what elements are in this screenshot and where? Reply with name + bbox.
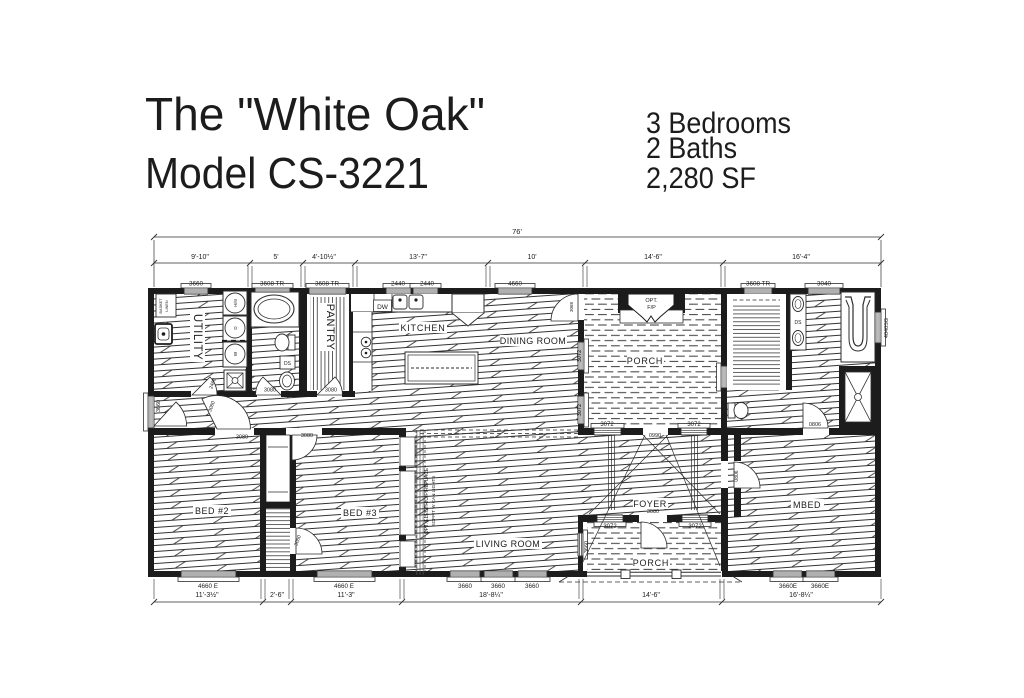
svg-text:3072: 3072 — [688, 524, 702, 530]
svg-text:3660: 3660 — [525, 583, 540, 590]
svg-text:5': 5' — [273, 254, 278, 261]
svg-text:3660: 3660 — [584, 541, 590, 553]
svg-text:2440: 2440 — [391, 281, 406, 288]
svg-text:3608 TR: 3608 TR — [746, 281, 770, 288]
svg-text:3660: 3660 — [156, 400, 162, 412]
svg-text:3660: 3660 — [189, 281, 204, 288]
svg-text:2 Baths: 2 Baths — [646, 132, 737, 165]
svg-text:3068: 3068 — [569, 301, 574, 312]
svg-text:4660 E: 4660 E — [198, 583, 218, 590]
svg-text:KITCHEN: KITCHEN — [400, 323, 445, 333]
svg-text:LINEN: LINEN — [165, 300, 169, 311]
svg-text:16'-4": 16'-4" — [792, 254, 810, 261]
svg-text:BASKET: BASKET — [159, 298, 163, 314]
svg-text:4040SG: 4040SG — [884, 318, 890, 338]
svg-text:13'-7": 13'-7" — [409, 254, 427, 261]
svg-text:3660: 3660 — [458, 583, 473, 590]
svg-text:18'-8¼": 18'-8¼" — [479, 592, 503, 599]
svg-text:DS: DS — [795, 320, 803, 326]
svg-text:3072: 3072 — [577, 404, 583, 416]
svg-text:16'-8¼": 16'-8¼" — [789, 592, 813, 599]
svg-text:3080: 3080 — [236, 435, 248, 441]
svg-text:3660E: 3660E — [779, 583, 797, 590]
svg-text:4'-10½": 4'-10½" — [312, 253, 336, 261]
svg-text:UTILITY: UTILITY — [191, 314, 203, 360]
svg-text:3660: 3660 — [491, 583, 506, 590]
svg-text:4660: 4660 — [508, 281, 523, 288]
svg-text:DS: DS — [284, 361, 292, 367]
svg-text:14'-6": 14'-6" — [644, 254, 662, 261]
svg-text:4660 E: 4660 E — [334, 583, 354, 590]
svg-text:3080: 3080 — [647, 509, 659, 515]
svg-text:The "White Oak": The "White Oak" — [145, 88, 485, 140]
svg-text:3072: 3072 — [687, 422, 701, 428]
svg-text:OPT.: OPT. — [645, 298, 658, 304]
svg-text:FOYER: FOYER — [633, 499, 667, 509]
svg-text:3080: 3080 — [264, 388, 276, 394]
svg-text:2,280 SF: 2,280 SF — [646, 162, 756, 195]
svg-text:BED #3: BED #3 — [343, 508, 377, 518]
svg-text:OPT. ELECTRIC FIREPLACE: OPT. ELECTRIC FIREPLACE — [424, 467, 430, 534]
svg-text:LIVING ROOM: LIVING ROOM — [476, 539, 540, 549]
svg-text:76': 76' — [512, 227, 522, 236]
svg-text:3072: 3072 — [600, 422, 614, 428]
svg-text:H/M: H/M — [233, 299, 238, 307]
svg-text:3072: 3072 — [603, 524, 617, 530]
svg-text:MBED: MBED — [793, 500, 821, 510]
svg-text:3080: 3080 — [301, 433, 313, 439]
svg-text:SOFFIT W CAN LIGHTS: SOFFIT W CAN LIGHTS — [431, 476, 436, 527]
svg-text:3660E: 3660E — [811, 583, 829, 590]
svg-text:DW: DW — [377, 304, 389, 311]
svg-text:0806: 0806 — [734, 470, 740, 481]
svg-text:0990: 0990 — [649, 433, 661, 439]
svg-text:BED #2: BED #2 — [195, 506, 229, 516]
svg-text:F/P: F/P — [647, 305, 656, 311]
svg-text:PORCH: PORCH — [627, 356, 664, 366]
svg-text:9'-10": 9'-10" — [191, 254, 209, 261]
svg-text:11'-3½": 11'-3½" — [195, 591, 219, 599]
svg-text:11'-3": 11'-3" — [337, 592, 355, 599]
svg-text:2'-6": 2'-6" — [270, 592, 284, 599]
svg-text:3072: 3072 — [577, 350, 583, 362]
svg-text:3608 TR: 3608 TR — [315, 281, 339, 288]
svg-text:3080: 3080 — [325, 388, 337, 394]
svg-text:2440: 2440 — [420, 281, 435, 288]
svg-text:14'-6": 14'-6" — [642, 592, 660, 599]
svg-text:10': 10' — [527, 254, 536, 261]
svg-text:PORCH: PORCH — [633, 558, 670, 568]
svg-text:3040: 3040 — [817, 281, 832, 288]
svg-text:DINING ROOM: DINING ROOM — [500, 336, 566, 346]
svg-text:PANTRY: PANTRY — [324, 304, 336, 351]
svg-text:3608 TR: 3608 TR — [260, 281, 284, 288]
svg-text:Model CS-3221: Model CS-3221 — [145, 149, 429, 198]
svg-text:0806: 0806 — [809, 422, 821, 428]
